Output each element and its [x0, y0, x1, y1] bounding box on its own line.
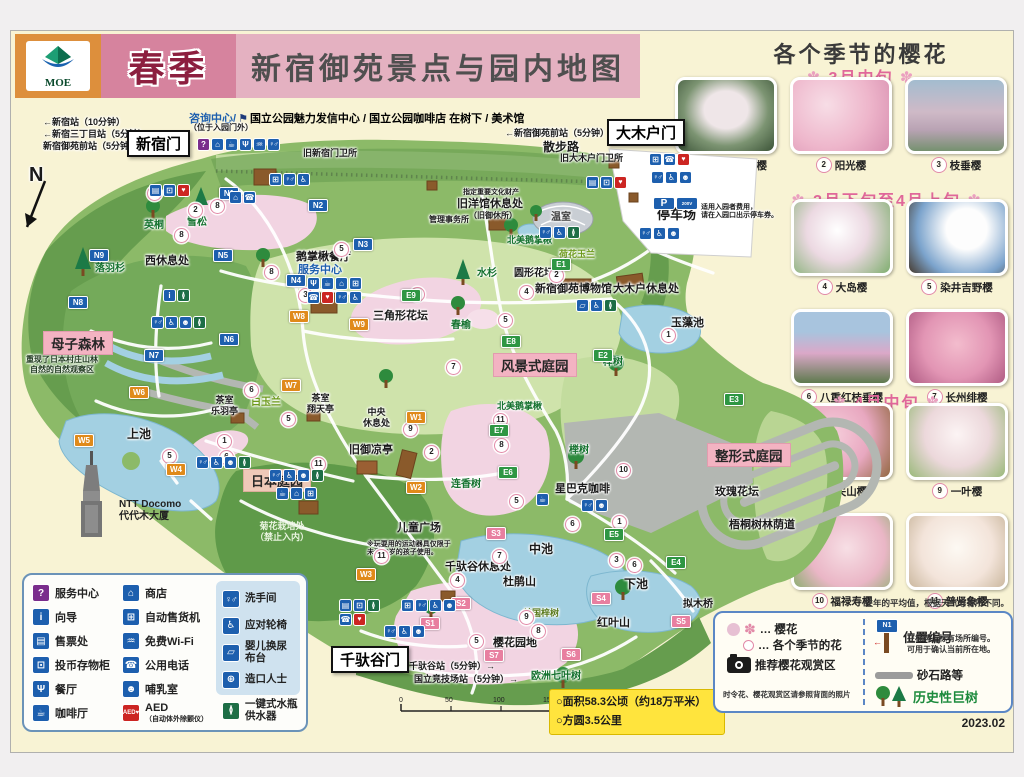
legend-icon: ☕ [32, 704, 50, 722]
legend-item: ⌂ 商店 [122, 581, 208, 605]
legend-item: ▱ 婴儿换尿布台 [222, 639, 296, 666]
legend-item: ⊞ 自动售货机 [122, 605, 208, 629]
legend-icon: Ψ [32, 680, 50, 698]
legend-item: ♀♂ 洗手间 [222, 585, 296, 612]
key-seasonal-flower-row: … 各个季节的花 [743, 637, 842, 653]
park-stats-box: ○面积58.3公顷（约18万平米） ○方圆3.5公里 [549, 689, 725, 735]
legend-icon: ⌂ [122, 584, 140, 602]
legend-label: 应对轮椅 [245, 620, 287, 632]
legend-label: 售票处 [55, 633, 88, 649]
key-label: … 各个季节的花 [758, 637, 842, 653]
legend-column-3: ♀♂ 洗手间 ♿ 应对轮椅 ▱ 婴儿换尿布台 ⊕ 造口人士 [222, 585, 296, 693]
legend-label: 哺乳室 [145, 684, 178, 696]
legend-icon: ♀♂ [222, 590, 240, 608]
seasonal-flower-icon [743, 640, 754, 651]
legend-icon: ▱ [222, 644, 240, 662]
key-label: 历史性巨树 [913, 687, 978, 706]
map-key: ✽ … 樱花 … 各个季节的花 推荐樱花观赏区 时令花、樱花观赏区请参照背面的照… [713, 611, 1013, 713]
legend-item: ♒ 免费Wi-Fi [122, 629, 208, 653]
legend-item: ⊡ 投币存物柜 [32, 653, 110, 677]
legend-label: 向导 [55, 609, 77, 625]
legend-icon: ⊕ [222, 671, 240, 689]
legend-label: 洗手间 [245, 593, 277, 605]
camera-icon [727, 657, 751, 673]
legend-label: AED [145, 702, 168, 714]
legend-sublabel: （自动体外除颤仪） [145, 714, 208, 724]
legend-icon: i [32, 608, 50, 626]
legend-item: ☕ 咖啡厅 [32, 701, 110, 725]
key-label: 砂石路等 [917, 667, 963, 683]
legend-item: ? 服务中心 [32, 581, 110, 605]
legend-icon: ? [32, 584, 50, 602]
scale-tick-0: 0 [399, 697, 403, 704]
position-desc: 在标牌上标有场所编号。 可用于确认当前所在地。 [907, 633, 1007, 655]
position-sign-icon: N1 ← [873, 619, 899, 653]
legend-item: ☎ 公用电话 [122, 653, 208, 677]
map-poster: MOE 春季 新宿御苑景点与园内地图 各个季节的樱花 3月中旬 1高远大叶早樱 … [10, 30, 1014, 753]
key-label: 推荐樱花观赏区 [755, 657, 836, 673]
legend-label: 商店 [145, 588, 167, 600]
camera-note: 时令花、樱花观赏区请参照背面的照片 [723, 689, 863, 700]
key-cherry-row: ✽ … 樱花 [727, 621, 797, 637]
legend-label: 婴儿换尿布台 [245, 641, 296, 664]
legend-icon: ▤ [32, 632, 50, 650]
legend-label: 免费Wi-Fi [145, 636, 194, 648]
average-note: 往年的平均值，根据天气等有所不同。 [771, 597, 1009, 609]
legend-item: ▤ 售票处 [32, 629, 110, 653]
key-giant-trees-row: 历史性巨树 [875, 685, 978, 707]
legend-label: 自动售货机 [145, 612, 200, 624]
legend-icon: ☎ [122, 656, 140, 674]
legend-label: 公用电话 [145, 660, 189, 672]
version-date: 2023.02 [962, 716, 1005, 730]
legend-item: ⊕ 造口人士 [222, 666, 296, 693]
legend-icon: ⊡ [32, 656, 50, 674]
legend-item: Ψ 餐厅 [32, 677, 110, 701]
legend-item: i 向导 [32, 605, 110, 629]
cherry-flower-icon: ✽ [744, 623, 756, 635]
legend-icon: ♿ [222, 617, 240, 635]
park-area: ○面积58.3公顷（约18万平米） [556, 693, 718, 712]
greenhouse-icon [533, 202, 593, 236]
scale-tick-50: 50 [445, 697, 453, 704]
legend-label: 服务中心 [55, 585, 99, 601]
legend-icon: ⊞ [122, 608, 140, 626]
key-camera-row: 推荐樱花观赏区 [727, 657, 836, 673]
compass-icon [25, 181, 45, 227]
divider [863, 619, 865, 705]
facility-legend: ? 服务中心 i 向导 ▤ 售票处 ⊡ 投币存物柜 Ψ 餐厅 ☕ 咖啡厅 ⌂ [22, 573, 308, 732]
giant-tree-icon [875, 685, 909, 707]
scale-tick-100: 100 [493, 697, 505, 704]
key-gravel-row: 砂石路等 [875, 667, 963, 683]
legend-icon: ♒ [122, 632, 140, 650]
legend-column-2: ⌂ 商店 ⊞ 自动售货机 ♒ 免费Wi-Fi ☎ 公用电话 ☻ 哺乳室 AED♥… [122, 581, 208, 725]
key-label: … 樱花 [760, 621, 798, 637]
legend-icon: ☻ [122, 680, 140, 698]
water-bottle-icon: ≬ [222, 702, 240, 720]
park-perimeter: ○方圆3.5公里 [556, 712, 718, 731]
gravel-road-icon [875, 672, 913, 679]
legend-item: AED♥ AED（自动体外除颤仪） [122, 701, 208, 725]
direction-arrow-icon: ← [873, 637, 882, 647]
legend-label: 餐厅 [55, 681, 77, 697]
cherry-area-icon [727, 623, 740, 636]
legend-column-1: ? 服务中心 i 向导 ▤ 售票处 ⊡ 投币存物柜 Ψ 餐厅 ☕ 咖啡厅 [32, 581, 110, 725]
legend-item-water: ≬ 一键式水瓶供水器 [222, 699, 302, 722]
legend-label: 投币存物柜 [55, 657, 110, 673]
legend-icon: AED♥ [122, 704, 140, 722]
legend-label: 一键式水瓶供水器 [245, 699, 302, 722]
legend-item: ☻ 哺乳室 [122, 677, 208, 701]
legend-label: 咖啡厅 [55, 705, 88, 721]
legend-label: 造口人士 [245, 674, 287, 686]
legend-item: ♿ 应对轮椅 [222, 612, 296, 639]
